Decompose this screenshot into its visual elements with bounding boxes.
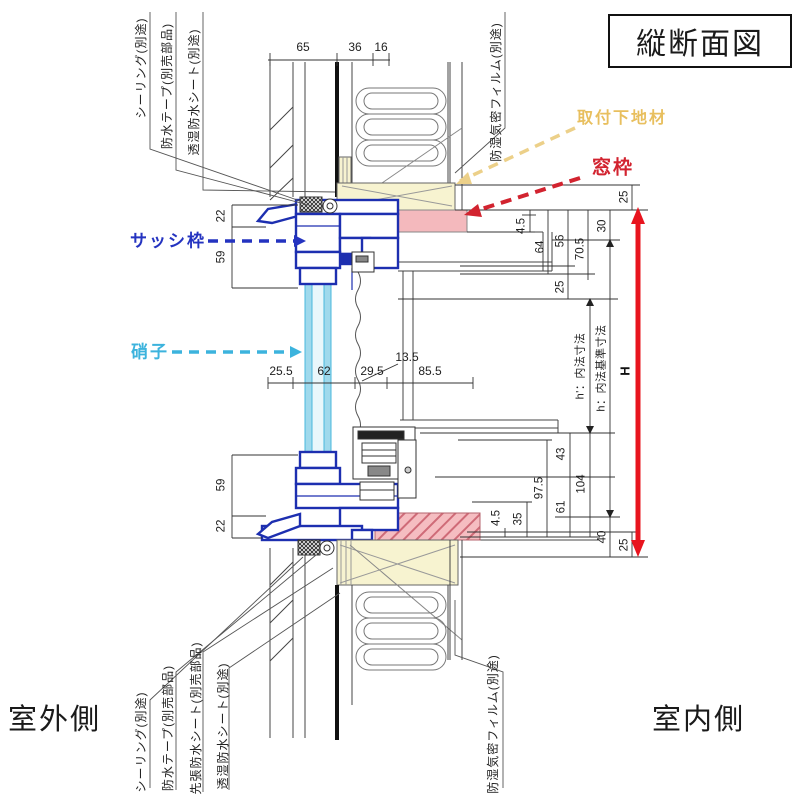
dim-16: 16 <box>374 41 387 53</box>
dim-left-59-top: 59 <box>216 251 228 264</box>
part-label-film-top: 防湿気密フィルム(別途) <box>490 22 502 162</box>
dim-h-prime-inner: h'：内法寸法 <box>576 333 587 400</box>
dim-right-56: 56 <box>555 235 567 248</box>
dim-right-4-5-bottom: 4.5 <box>491 510 503 526</box>
callout-sash-frame: サッシ枠 <box>130 233 206 250</box>
section-drawing-canvas <box>0 0 800 800</box>
dim-29-5: 29.5 <box>360 365 383 377</box>
dim-right-97-5: 97.5 <box>534 477 546 499</box>
moisture-film-line <box>356 272 361 452</box>
indoor-side-label: 室内側 <box>652 696 745 738</box>
part-label-wp-sheet-bottom: 透湿防水シート(別途) <box>217 663 229 790</box>
vertical-section-drawing: 縦断面図 室外側 室内側 シーリング(別途) 防水テープ(別売部品) 透湿防水シ… <box>0 0 800 800</box>
part-label-film-bottom: 防湿気密フィルム(別途) <box>487 654 499 794</box>
mounting-base-arrow <box>460 128 575 181</box>
dim-right-25-mid: 25 <box>555 281 567 294</box>
part-label-pre-sheet-bottom: 先張防水シート(別売部品) <box>190 642 202 795</box>
dim-85-5: 85.5 <box>418 365 441 377</box>
height-arrow <box>631 207 645 557</box>
dim-left-22-top: 22 <box>216 210 228 223</box>
window-frame-arrow <box>472 178 580 212</box>
dim-62: 62 <box>317 365 330 377</box>
dim-right-104: 104 <box>576 474 588 493</box>
dim-right-40: 40 <box>597 531 609 544</box>
dim-right-25-bottom: 25 <box>619 539 631 552</box>
dim-H: H <box>619 366 632 375</box>
dim-right-70-5: 70.5 <box>575 238 587 260</box>
dim-right-25-top: 25 <box>619 191 631 204</box>
dim-right-4-5-top: 4.5 <box>516 218 528 234</box>
lock-mechanism <box>353 427 416 500</box>
drawing-title: 縦断面図 <box>636 19 764 63</box>
outdoor-side-label: 室外側 <box>8 696 101 738</box>
dim-right-30: 30 <box>597 220 609 233</box>
dim-13-5: 13.5 <box>395 351 418 363</box>
top-sash-frame <box>258 200 398 290</box>
dim-36: 36 <box>348 41 361 53</box>
dim-25-5: 25.5 <box>269 365 292 377</box>
dim-left-22-bottom: 22 <box>216 520 228 533</box>
dim-right-64: 64 <box>535 241 547 254</box>
part-label-sealing-bottom: シーリング(別途) <box>135 692 147 793</box>
callout-glass: 硝子 <box>131 344 169 361</box>
dim-h-standard: h：内法基準寸法 <box>597 324 608 411</box>
dim-right-61: 61 <box>556 501 568 514</box>
dim-65: 65 <box>296 41 309 53</box>
upper-latch <box>352 252 374 272</box>
part-label-wp-sheet-top: 透湿防水シート(別途) <box>188 29 200 156</box>
part-label-wp-tape-bottom: 防水テープ(別売部品) <box>162 665 174 791</box>
part-label-sealing-top: シーリング(別途) <box>135 18 147 119</box>
callout-mounting-base: 取付下地材 <box>577 111 667 127</box>
dim-right-43: 43 <box>556 448 568 461</box>
callout-window-frame: 窓枠 <box>592 159 634 178</box>
title-box: 縦断面図 <box>608 14 792 68</box>
dim-right-35: 35 <box>513 513 525 526</box>
dim-left-59-bottom: 59 <box>216 479 228 492</box>
bottom-wall <box>270 540 462 740</box>
part-label-wp-tape-top: 防水テープ(別売部品) <box>161 23 173 149</box>
